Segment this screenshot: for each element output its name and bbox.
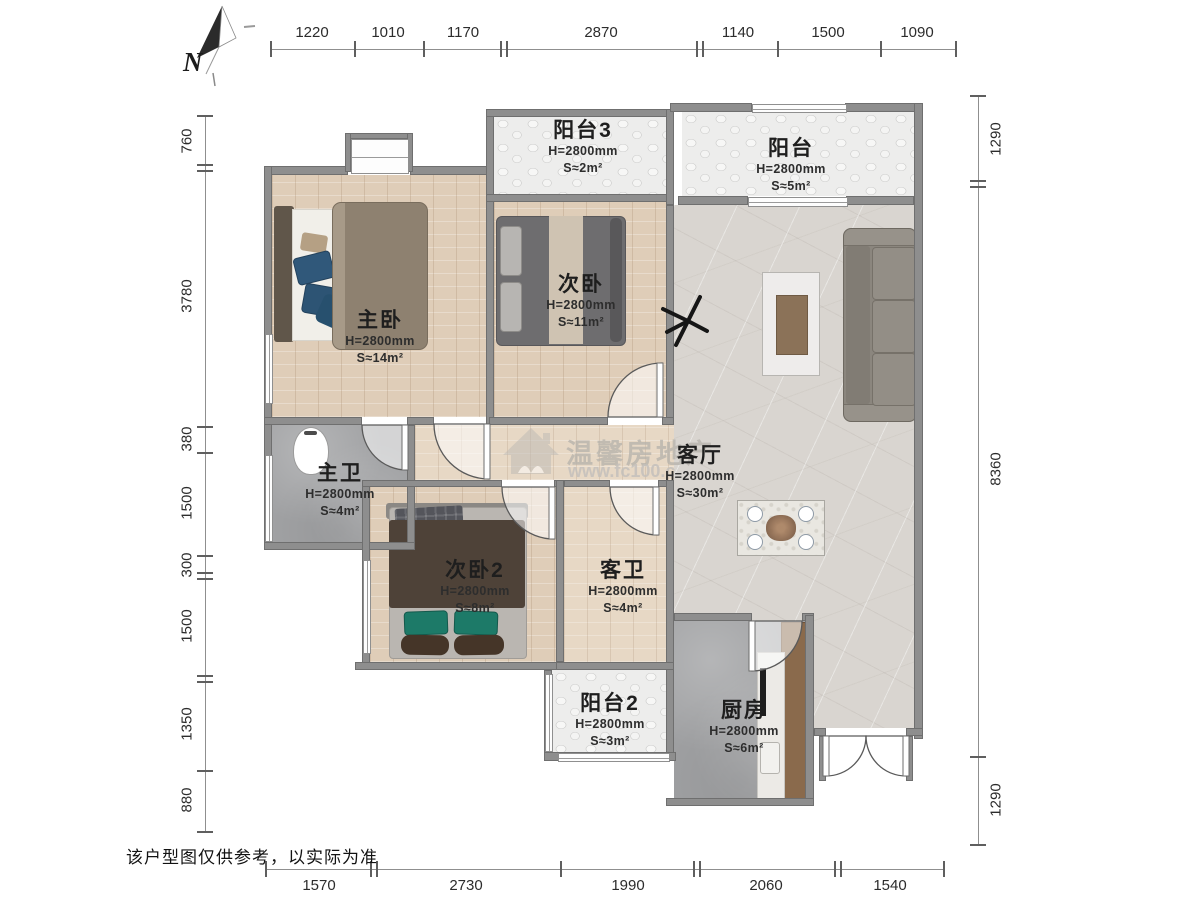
dim-tick — [197, 770, 213, 772]
room-area: S≈11m² — [546, 314, 616, 331]
dim-tick — [560, 861, 562, 877]
dim-tick — [197, 452, 213, 454]
dim-tick — [197, 675, 213, 677]
room-area: S≈8m² — [440, 600, 510, 617]
room-area: S≈2m² — [548, 160, 618, 177]
dim-label-top-0: 1220 — [295, 24, 328, 41]
dim-label-right-0: 1290 — [988, 122, 1005, 155]
room-name: 次卧 — [546, 272, 616, 297]
dim-tick — [777, 41, 779, 57]
dim-tick — [834, 861, 836, 877]
dim-tick — [197, 115, 213, 117]
room-name: 阳台2 — [575, 691, 645, 716]
room-name: 次卧2 — [440, 558, 510, 583]
dim-tick — [970, 95, 986, 97]
dim-tick — [699, 861, 701, 877]
room-label-masterbath: 主卫 H=2800mm S≈4m² — [305, 461, 375, 520]
room-area: S≈3m² — [575, 733, 645, 750]
room-height: H=2800mm — [665, 468, 735, 485]
dim-tick — [423, 41, 425, 57]
dim-label-bottom-4: 1540 — [873, 877, 906, 894]
room-name: 主卧 — [345, 308, 415, 333]
dim-line-left — [205, 115, 206, 831]
room-name: 厨房 — [709, 698, 779, 723]
room-area: S≈4m² — [588, 600, 658, 617]
room-name: 阳台3 — [548, 118, 618, 143]
dim-tick — [970, 180, 986, 182]
dim-tick — [197, 164, 213, 166]
room-height: H=2800mm — [546, 297, 616, 314]
door-kitchen — [752, 621, 802, 671]
door-entrance-left — [826, 736, 866, 776]
plant-icon — [663, 297, 707, 345]
dim-label-left-6: 1350 — [179, 707, 196, 740]
dim-tick — [880, 41, 882, 57]
dim-tick — [943, 861, 945, 877]
dim-label-bottom-3: 2060 — [749, 877, 782, 894]
door-master-bedroom — [434, 424, 489, 479]
door-bedroom2 — [608, 363, 662, 417]
room-area: S≈4m² — [305, 503, 375, 520]
room-height: H=2800mm — [345, 333, 415, 350]
dim-tick — [197, 831, 213, 833]
dim-label-right-1: 8360 — [988, 452, 1005, 485]
north-label: N — [182, 47, 204, 77]
room-name: 阳台 — [756, 136, 826, 161]
dim-tick — [500, 41, 502, 57]
dim-label-top-6: 1090 — [900, 24, 933, 41]
room-area: S≈6m² — [709, 740, 779, 757]
room-height: H=2800mm — [575, 716, 645, 733]
dim-line-right — [978, 95, 979, 845]
dim-tick — [506, 41, 508, 57]
room-name: 主卫 — [305, 461, 375, 486]
dim-label-top-2: 1170 — [447, 24, 479, 41]
dim-label-left-1: 3780 — [179, 279, 196, 312]
disclaimer-text: 该户型图仅供参考，以实际为准 — [126, 843, 378, 868]
dim-label-top-5: 1500 — [811, 24, 844, 41]
door-bedroom3 — [502, 487, 554, 539]
dim-tick — [840, 861, 842, 877]
dim-label-left-3: 1500 — [179, 486, 196, 519]
dim-label-left-7: 880 — [179, 787, 196, 812]
dim-label-left-0: 760 — [179, 128, 196, 153]
dim-tick — [970, 844, 986, 846]
room-label-balcony2: 阳台2 H=2800mm S≈3m² — [575, 691, 645, 750]
room-label-bedroom2: 次卧 H=2800mm S≈11m² — [546, 272, 616, 331]
dim-label-top-3: 2870 — [584, 24, 617, 41]
dim-label-bottom-1: 2730 — [449, 877, 482, 894]
room-label-balcony3: 阳台3 H=2800mm S≈2m² — [548, 118, 618, 177]
dim-tick — [197, 578, 213, 580]
dim-tick — [197, 426, 213, 428]
dim-tick — [970, 186, 986, 188]
room-label-guestbath: 客卫 H=2800mm S≈4m² — [588, 558, 658, 617]
dim-tick — [197, 555, 213, 557]
room-height: H=2800mm — [305, 486, 375, 503]
dim-tick — [197, 572, 213, 574]
dim-line-top — [270, 49, 955, 50]
room-area: S≈5m² — [756, 178, 826, 195]
dim-tick — [197, 170, 213, 172]
dim-label-top-1: 1010 — [371, 24, 404, 41]
dim-tick — [696, 41, 698, 57]
dim-tick — [693, 861, 695, 877]
room-label-bedroom3: 次卧2 H=2800mm S≈8m² — [440, 558, 510, 617]
room-height: H=2800mm — [548, 143, 618, 160]
room-area: S≈30m² — [665, 485, 735, 502]
room-label-kitchen: 厨房 H=2800mm S≈6m² — [709, 698, 779, 757]
watermark-url: www.fc100.c — [568, 461, 675, 482]
dim-label-top-4: 1140 — [722, 24, 754, 41]
room-name: 客厅 — [665, 443, 735, 468]
room-height: H=2800mm — [756, 161, 826, 178]
dim-tick — [270, 41, 272, 57]
dim-label-bottom-2: 1990 — [611, 877, 644, 894]
room-name: 客卫 — [588, 558, 658, 583]
dim-label-left-5: 1500 — [179, 609, 196, 642]
room-height: H=2800mm — [440, 583, 510, 600]
dim-label-left-2: 380 — [179, 426, 196, 451]
dim-label-right-2: 1290 — [988, 783, 1005, 816]
dim-label-bottom-0: 1570 — [302, 877, 335, 894]
dim-tick — [702, 41, 704, 57]
dim-tick — [970, 756, 986, 758]
room-label-master: 主卧 H=2800mm S≈14m² — [345, 308, 415, 367]
room-height: H=2800mm — [709, 723, 779, 740]
north-arrow-icon: N — [182, 6, 255, 86]
floorplan-canvas: N 温馨房地产 www.fc100.c 阳台3 H=2800mm S≈2m² 阳… — [0, 0, 1200, 900]
dim-tick — [955, 41, 957, 57]
dim-tick — [354, 41, 356, 57]
door-entrance-right — [866, 736, 906, 776]
room-height: H=2800mm — [588, 583, 658, 600]
door-guest-bath — [610, 487, 658, 535]
room-label-living: 客厅 H=2800mm S≈30m² — [665, 443, 735, 502]
room-area: S≈14m² — [345, 350, 415, 367]
house-logo-icon — [503, 428, 559, 474]
dim-tick — [197, 681, 213, 683]
dim-label-left-4: 300 — [179, 552, 196, 577]
room-label-balcony: 阳台 H=2800mm S≈5m² — [756, 136, 826, 195]
